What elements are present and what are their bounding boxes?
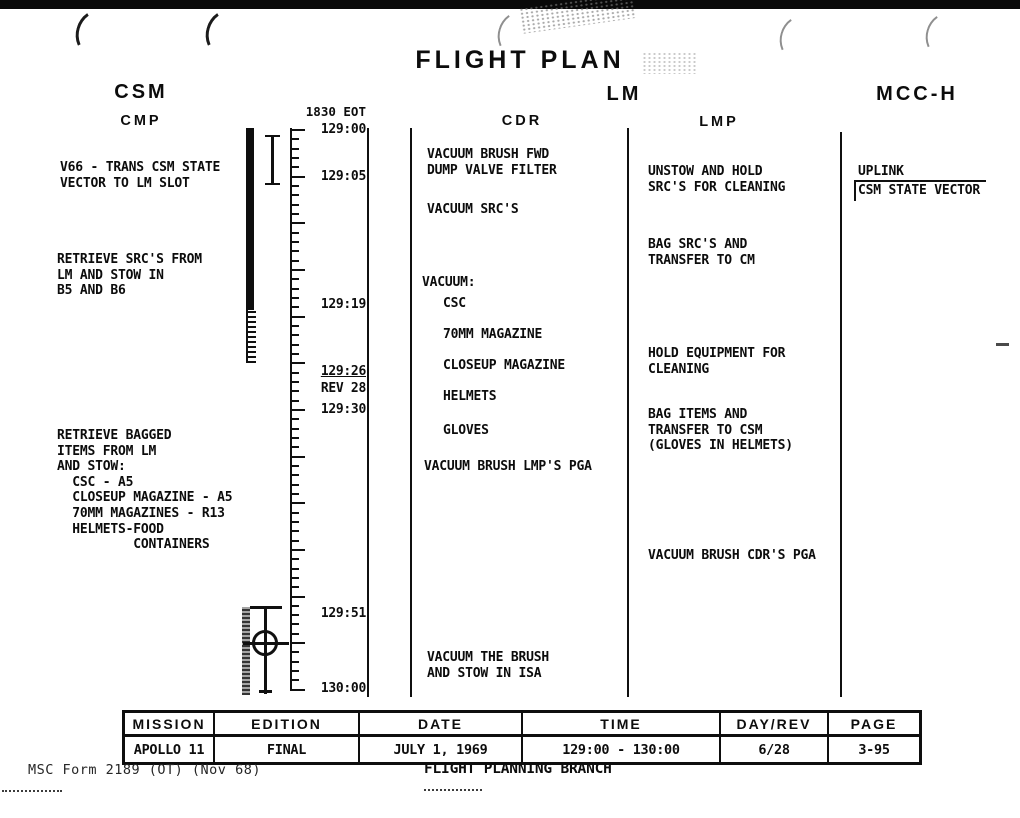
table-header-time: TIME (523, 713, 721, 737)
cmp-activity: RETRIEVE SRC'S FROM LM AND STOW IN B5 AN… (57, 252, 202, 299)
tick-minor (292, 633, 299, 635)
punch-hole-arc (200, 6, 249, 61)
table-value-dayrev: 6/28 (721, 737, 829, 762)
column-divider (410, 128, 412, 697)
tick-minor (292, 138, 299, 140)
tick-minor (292, 344, 299, 346)
tick-minor (292, 166, 299, 168)
column-divider (367, 128, 369, 697)
column-header-mcch: MCC-H (862, 83, 972, 106)
tick-minor (292, 605, 299, 607)
cdr-activity: CLOSEUP MAGAZINE (443, 358, 565, 374)
time-label: 129:19 (300, 297, 366, 313)
tick-minor (292, 493, 299, 495)
time-label: REV 28 (300, 381, 366, 397)
cdr-activity: VACUUM: (422, 275, 475, 291)
lmp-activity: HOLD EQUIPMENT FOR CLEANING (648, 346, 785, 377)
tick-minor (292, 521, 299, 523)
tick-minor (292, 623, 299, 625)
tick-minor (292, 446, 299, 448)
duration-ibeam-symbol (265, 135, 280, 185)
activity-bar-solid (246, 128, 254, 310)
cdr-activity: 70MM MAGAZINE (443, 327, 542, 343)
punch-hole-arc (775, 12, 822, 64)
tick-minor (292, 474, 299, 476)
table-value-mission: APOLLO 11 (125, 737, 215, 762)
scan-edge-mark (996, 343, 1009, 346)
activity-bar-hatched (246, 310, 256, 363)
tick-minor (292, 260, 299, 262)
punch-hole-arc (70, 6, 119, 61)
lmp-activity: BAG SRC'S AND TRANSFER TO CM (648, 237, 755, 268)
cdr-activity: CSC (443, 296, 466, 312)
tick-minor (292, 204, 299, 206)
cdr-activity: GLOVES (443, 423, 489, 439)
time-label: 129:05 (300, 169, 366, 185)
tick-minor (292, 325, 299, 327)
punch-hole-arc (921, 9, 968, 61)
table-value-time: 129:00 - 130:00 (523, 737, 721, 762)
tick-minor (292, 530, 299, 532)
crew-header-cdr: CDR (472, 113, 572, 129)
time-label: 129:00 (300, 122, 366, 138)
crew-header-lmp: LMP (669, 114, 769, 130)
tick-minor (292, 250, 299, 252)
tick-major (292, 549, 305, 551)
table-header-mission: MISSION (125, 713, 215, 737)
flight-plan-page: FLIGHT PLAN CSM CMP LM CDR LMP MCC-H 183… (0, 0, 1020, 818)
column-divider (840, 132, 842, 697)
tick-minor (292, 372, 299, 374)
tick-minor (292, 670, 299, 672)
tick-minor (292, 288, 299, 290)
tick-minor (292, 213, 299, 215)
table-header-page: PAGE (829, 713, 919, 737)
table-header-edition: EDITION (215, 713, 360, 737)
tick-major (292, 222, 305, 224)
tick-minor (292, 568, 299, 570)
scan-dots (2, 790, 62, 792)
tick-minor (292, 484, 299, 486)
tick-minor (292, 157, 299, 159)
column-header-lm: LM (574, 83, 674, 106)
page-title: FLIGHT PLAN (390, 46, 650, 75)
tick-major (292, 502, 305, 504)
tick-minor (292, 306, 299, 308)
tick-major (292, 596, 305, 598)
lmp-activity: VACUUM BRUSH CDR'S PGA (648, 548, 816, 564)
eat-period-symbol (246, 606, 286, 696)
time-label: 129:30 (300, 402, 366, 418)
tick-major (292, 642, 305, 644)
uplink-item-box: CSM STATE VECTOR (854, 180, 986, 201)
tick-minor (292, 232, 299, 234)
tick-minor (292, 334, 299, 336)
eat-symbol-crossline (243, 642, 289, 645)
timeline-eot-label: 1830 EOT (300, 104, 366, 119)
scan-dots (424, 789, 482, 791)
footer-table: MISSION EDITION DATE TIME DAY/REV PAGE A… (122, 710, 922, 765)
tick-minor (292, 586, 299, 588)
cdr-activity: HELMETS (443, 389, 496, 405)
lmp-activity: UNSTOW AND HOLD SRC'S FOR CLEANING (648, 164, 785, 195)
table-value-page: 3-95 (829, 737, 919, 762)
cmp-activity: V66 - TRANS CSM STATE VECTOR TO LM SLOT (60, 160, 220, 191)
lmp-activity: BAG ITEMS AND TRANSFER TO CSM (GLOVES IN… (648, 407, 793, 454)
tick-minor (292, 400, 299, 402)
column-divider (627, 128, 629, 697)
tick-minor (292, 390, 299, 392)
tick-minor (292, 278, 299, 280)
tick-minor (292, 465, 299, 467)
table-value-edition: FINAL (215, 737, 360, 762)
uplink-label: UPLINK (858, 164, 904, 180)
form-number: MSC Form 2189 (OT) (Nov 68) (28, 762, 261, 778)
table-header-date: DATE (360, 713, 523, 737)
scan-top-edge (0, 0, 1020, 9)
time-label: 129:51 (300, 606, 366, 622)
tick-minor (292, 297, 299, 299)
tick-minor (292, 577, 299, 579)
tick-minor (292, 353, 299, 355)
table-value-date: JULY 1, 1969 (360, 737, 523, 762)
scan-smudge (519, 0, 636, 34)
tick-major (292, 316, 305, 318)
tick-minor (292, 428, 299, 430)
tick-minor (292, 558, 299, 560)
tick-minor (292, 512, 299, 514)
column-header-csm: CSM (91, 81, 191, 104)
tick-minor (292, 437, 299, 439)
cdr-activity: VACUUM BRUSH FWD DUMP VALVE FILTER (427, 147, 557, 178)
tick-minor (292, 148, 299, 150)
tick-minor (292, 614, 299, 616)
cdr-activity: VACUUM SRC'S (427, 202, 519, 218)
cdr-activity: VACUUM THE BRUSH AND STOW IN ISA (427, 650, 549, 681)
scan-smudge (642, 52, 697, 74)
tick-major (292, 269, 305, 271)
tick-minor (292, 185, 299, 187)
table-header-dayrev: DAY/REV (721, 713, 829, 737)
cmp-activity: RETRIEVE BAGGED ITEMS FROM LM AND STOW: … (57, 428, 232, 553)
eat-symbol-foot (259, 690, 272, 693)
tick-minor (292, 418, 299, 420)
tick-minor (292, 241, 299, 243)
tick-minor (292, 661, 299, 663)
tick-minor (292, 679, 299, 681)
tick-minor (292, 540, 299, 542)
footer-org: FLIGHT PLANNING BRANCH (424, 761, 612, 777)
cdr-activity: VACUUM BRUSH LMP'S PGA (424, 459, 592, 475)
time-label: 129:26 (300, 364, 366, 380)
crew-header-cmp: CMP (91, 113, 191, 129)
tick-minor (292, 651, 299, 653)
tick-major (292, 456, 305, 458)
tick-minor (292, 194, 299, 196)
time-label: 130:00 (300, 681, 366, 697)
tick-minor (292, 381, 299, 383)
